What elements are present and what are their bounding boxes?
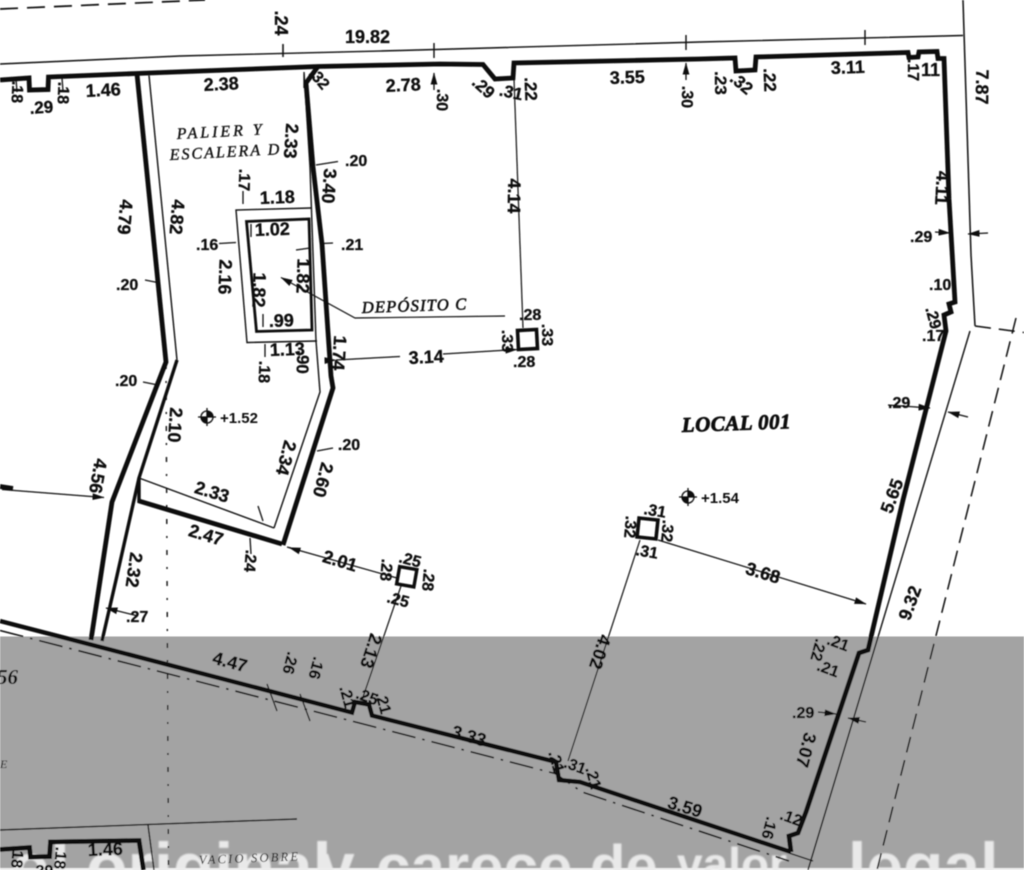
svg-text:3.14: 3.14 bbox=[408, 346, 444, 368]
svg-text:2.78: 2.78 bbox=[385, 74, 421, 96]
svg-text:.29: .29 bbox=[31, 863, 53, 870]
svg-text:.17: .17 bbox=[235, 169, 253, 192]
svg-text:.90: .90 bbox=[293, 350, 313, 374]
svg-text:E: E bbox=[0, 757, 8, 771]
svg-text:.24: .24 bbox=[240, 549, 259, 573]
svg-text:1.46: 1.46 bbox=[85, 79, 121, 101]
svg-text:.17: .17 bbox=[922, 328, 944, 345]
svg-text:2.16: 2.16 bbox=[214, 259, 235, 295]
svg-text:2.01: 2.01 bbox=[320, 546, 359, 575]
svg-text:1.82: 1.82 bbox=[248, 272, 269, 308]
svg-text:1.18: 1.18 bbox=[259, 187, 295, 208]
svg-text:1.02: 1.02 bbox=[254, 219, 290, 240]
svg-text:19.82: 19.82 bbox=[345, 27, 390, 47]
svg-text:.30: .30 bbox=[678, 86, 696, 109]
svg-text:.30: .30 bbox=[433, 89, 451, 112]
svg-text:.33: .33 bbox=[538, 324, 555, 346]
svg-text:+1.54: +1.54 bbox=[701, 490, 740, 507]
svg-text:3.68: 3.68 bbox=[743, 558, 782, 587]
svg-text:.31: .31 bbox=[634, 542, 659, 563]
svg-text:.28: .28 bbox=[519, 307, 541, 324]
svg-text:2.33: 2.33 bbox=[280, 123, 302, 159]
svg-text:.20: .20 bbox=[338, 437, 360, 454]
svg-text:.18: .18 bbox=[8, 81, 26, 104]
svg-text:4.79: 4.79 bbox=[114, 199, 137, 236]
svg-text:11: 11 bbox=[921, 60, 940, 80]
svg-text:.29: .29 bbox=[792, 705, 814, 722]
svg-text:.24: .24 bbox=[271, 10, 291, 35]
svg-text:DEPÓSITO C: DEPÓSITO C bbox=[361, 294, 468, 317]
svg-text:.29: .29 bbox=[910, 229, 932, 246]
svg-text:.33: .33 bbox=[498, 330, 515, 352]
svg-text:ESCALERA D: ESCALERA D bbox=[168, 141, 281, 164]
svg-text:de: de bbox=[590, 834, 658, 870]
svg-text:.20: .20 bbox=[116, 277, 138, 294]
svg-text:2.60: 2.60 bbox=[309, 460, 337, 499]
svg-text:4.56: 4.56 bbox=[85, 457, 111, 495]
svg-text:3.40: 3.40 bbox=[318, 168, 340, 204]
svg-text:4.82: 4.82 bbox=[166, 199, 189, 236]
svg-text:legal: legal bbox=[848, 829, 998, 870]
svg-text:2.33: 2.33 bbox=[192, 477, 231, 506]
svg-text:.18: .18 bbox=[255, 361, 273, 384]
svg-text:.99: .99 bbox=[268, 310, 294, 331]
svg-text:3.11: 3.11 bbox=[830, 57, 865, 78]
svg-text:.32: .32 bbox=[305, 65, 332, 93]
svg-text:.20: .20 bbox=[115, 373, 137, 390]
svg-text:4.11: 4.11 bbox=[931, 170, 953, 205]
svg-text:.29: .29 bbox=[29, 97, 54, 118]
svg-text:.32: .32 bbox=[620, 515, 639, 539]
svg-text:.32: .32 bbox=[657, 519, 676, 543]
svg-text:valor: valor bbox=[677, 838, 787, 870]
svg-text:2.10: 2.10 bbox=[164, 407, 186, 443]
svg-text:PALIER Y: PALIER Y bbox=[175, 121, 265, 143]
svg-text:1.46: 1.46 bbox=[87, 839, 123, 860]
svg-text:2.34: 2.34 bbox=[272, 438, 300, 477]
svg-text:.22: .22 bbox=[521, 77, 541, 101]
svg-text:2.38: 2.38 bbox=[203, 73, 239, 95]
svg-text:1.82: 1.82 bbox=[292, 258, 313, 294]
svg-text:.28: .28 bbox=[513, 354, 535, 371]
svg-text:.18: .18 bbox=[7, 845, 26, 869]
svg-text:y: y bbox=[318, 829, 355, 870]
svg-text:9.32: 9.32 bbox=[895, 583, 926, 623]
svg-text:56: 56 bbox=[0, 665, 19, 689]
svg-text:4.14: 4.14 bbox=[504, 178, 525, 213]
svg-text:.20: .20 bbox=[345, 153, 367, 170]
svg-text:.25: .25 bbox=[385, 589, 411, 611]
svg-text:.31: .31 bbox=[498, 81, 525, 104]
svg-text:.21: .21 bbox=[341, 237, 363, 254]
svg-text:2.32: 2.32 bbox=[122, 551, 147, 588]
svg-text:.18: .18 bbox=[54, 82, 72, 105]
svg-text:.28: .28 bbox=[418, 568, 437, 592]
svg-text:.22: .22 bbox=[760, 68, 780, 92]
svg-text:.28: .28 bbox=[376, 558, 395, 582]
svg-text:3.55: 3.55 bbox=[609, 67, 645, 88]
svg-text:+1.52: +1.52 bbox=[220, 410, 258, 427]
svg-text:.17: .17 bbox=[904, 59, 921, 81]
svg-text:LOCAL 001: LOCAL 001 bbox=[680, 409, 791, 437]
svg-text:7.87: 7.87 bbox=[972, 69, 993, 104]
svg-text:carece: carece bbox=[376, 833, 573, 870]
svg-text:.29: .29 bbox=[888, 395, 910, 412]
svg-text:.16: .16 bbox=[196, 237, 218, 254]
svg-text:.27: .27 bbox=[126, 609, 148, 626]
svg-text:.10: .10 bbox=[929, 277, 951, 294]
svg-text:1.74: 1.74 bbox=[328, 335, 350, 371]
